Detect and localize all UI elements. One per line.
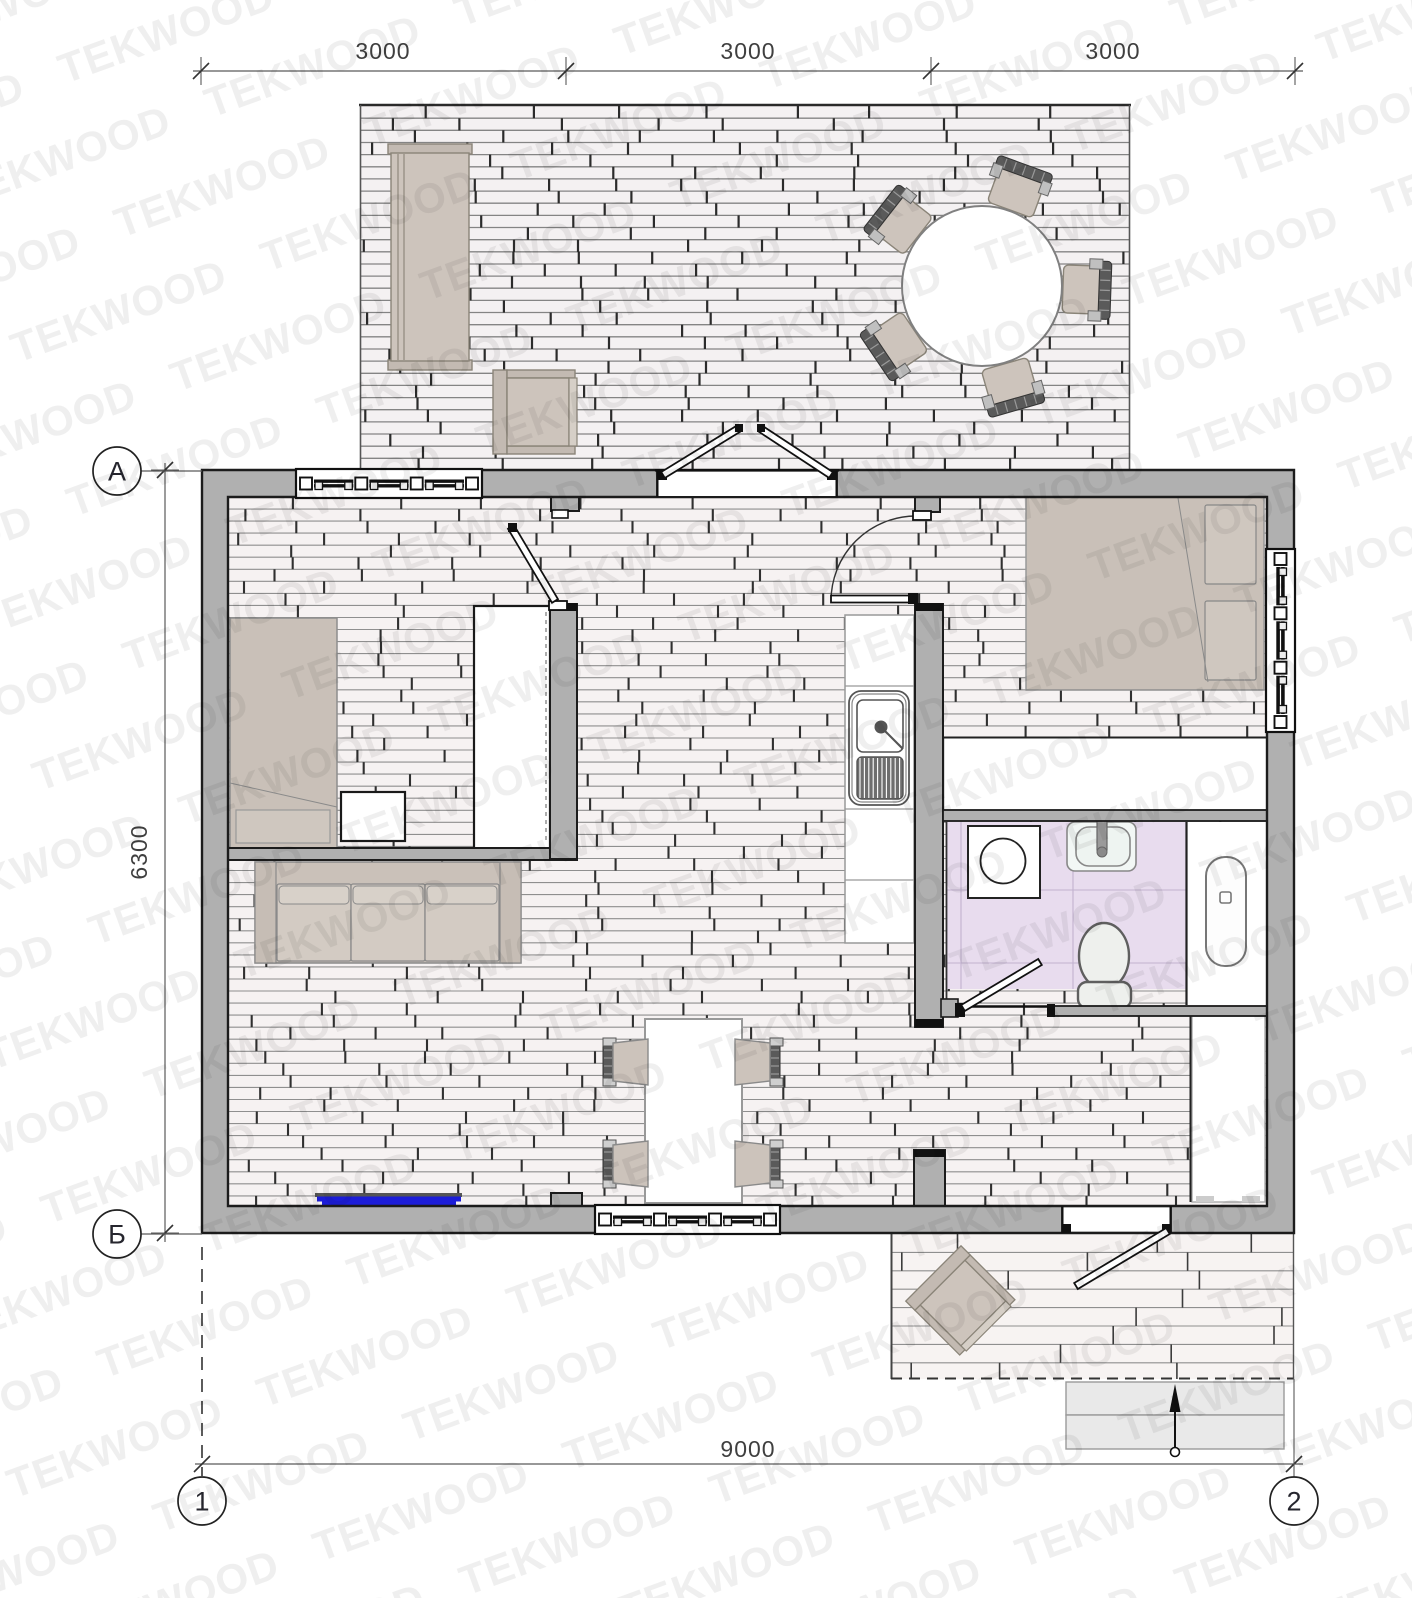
svg-text:2: 2 [1286,1487,1301,1517]
